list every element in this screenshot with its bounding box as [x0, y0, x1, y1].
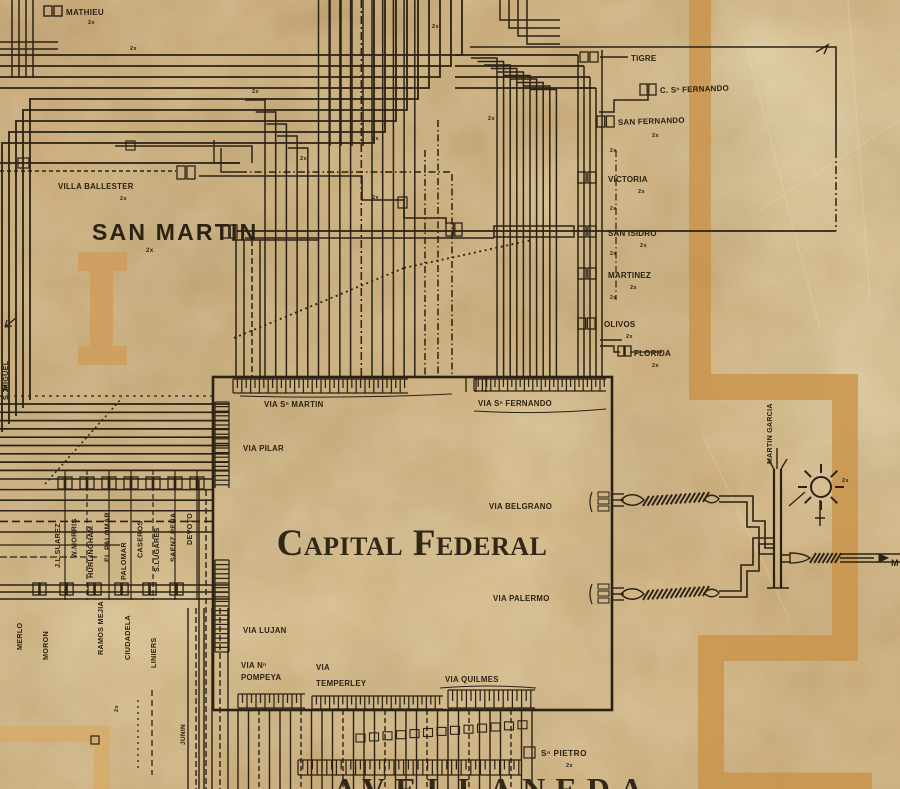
svg-text:TIGRE: TIGRE	[631, 54, 657, 63]
svg-text:2x: 2x	[146, 248, 154, 254]
svg-text:SAN MARTIN: SAN MARTIN	[92, 219, 258, 245]
svg-text:EL PALOMAR: EL PALOMAR	[103, 512, 112, 562]
svg-text:VIA PALERMO: VIA PALERMO	[493, 594, 550, 603]
svg-text:2x: 2x	[626, 334, 634, 340]
svg-text:2x: 2x	[252, 89, 260, 95]
svg-text:M: M	[891, 558, 899, 568]
svg-text:2x: 2x	[630, 285, 638, 291]
svg-text:SAN ISIDRO: SAN ISIDRO	[608, 229, 657, 238]
svg-text:PALOMAR: PALOMAR	[119, 542, 128, 580]
svg-text:MARTIN GARCIA: MARTIN GARCIA	[767, 403, 774, 464]
svg-text:VIA: VIA	[316, 663, 330, 672]
svg-text:OLIVOS: OLIVOS	[604, 320, 636, 329]
svg-text:Sⁿ PIETRO: Sⁿ PIETRO	[541, 749, 587, 758]
svg-text:VIA Nⁿ: VIA Nⁿ	[241, 661, 266, 670]
svg-text:FLORIDA: FLORIDA	[634, 349, 671, 358]
svg-text:POMPEYA: POMPEYA	[241, 673, 281, 682]
svg-text:2x: 2x	[842, 478, 850, 484]
svg-text:CASEROS: CASEROS	[136, 520, 145, 558]
svg-text:2x: 2x	[372, 136, 380, 142]
svg-text:2x: 2x	[120, 196, 128, 202]
svg-text:VIA Sⁿ MARTIN: VIA Sⁿ MARTIN	[264, 400, 324, 409]
svg-text:VIA QUILMES: VIA QUILMES	[445, 675, 499, 684]
svg-text:Capital Federal: Capital Federal	[277, 523, 548, 564]
svg-text:2x: 2x	[432, 24, 440, 30]
svg-text:S. MIGUEL: S. MIGUEL	[1, 360, 10, 400]
svg-text:TEMPERLEY: TEMPERLEY	[316, 679, 367, 688]
svg-text:2x: 2x	[610, 251, 617, 257]
svg-text:CIUDADELA: CIUDADELA	[123, 615, 132, 660]
svg-text:VIA LUJAN: VIA LUJAN	[243, 626, 287, 635]
svg-text:2x: 2x	[88, 20, 96, 26]
svg-text:2x: 2x	[488, 116, 496, 122]
svg-text:2x: 2x	[610, 148, 617, 154]
svg-text:SAENZ PEÑA: SAENZ PEÑA	[169, 513, 178, 562]
svg-text:MORON: MORON	[41, 631, 50, 660]
svg-text:VICTORIA: VICTORIA	[608, 175, 648, 184]
svg-text:2x: 2x	[638, 189, 646, 195]
svg-text:MARTINEZ: MARTINEZ	[608, 271, 651, 280]
svg-text:2x: 2x	[652, 363, 660, 369]
svg-text:W.MORRIS: W.MORRIS	[70, 518, 79, 558]
svg-text:RAMOS MEJIA: RAMOS MEJIA	[96, 601, 105, 655]
svg-text:2x: 2x	[610, 295, 617, 301]
svg-text:2x: 2x	[130, 46, 138, 52]
svg-text:2x: 2x	[610, 206, 617, 212]
svg-text:2x: 2x	[566, 763, 574, 769]
svg-text:2x: 2x	[640, 243, 648, 249]
svg-text:2x: 2x	[114, 704, 120, 712]
svg-text:AVELLANEDA: AVELLANEDA	[333, 771, 653, 789]
svg-text:MATHIEU: MATHIEU	[66, 8, 104, 17]
svg-text:VIA Sⁿ FERNANDO: VIA Sⁿ FERNANDO	[478, 399, 552, 408]
svg-text:MERLO: MERLO	[15, 622, 24, 650]
svg-text:VIA BELGRANO: VIA BELGRANO	[489, 502, 552, 511]
svg-text:VIA PILAR: VIA PILAR	[243, 444, 284, 453]
svg-text:VILLA BALLESTER: VILLA BALLESTER	[58, 182, 134, 191]
svg-text:2x: 2x	[372, 195, 380, 201]
svg-text:2x: 2x	[652, 133, 660, 139]
svg-text:JUNIN: JUNIN	[180, 724, 187, 745]
svg-text:2x: 2x	[300, 156, 308, 162]
svg-text:LINIERS: LINIERS	[149, 638, 158, 668]
svg-text:DEVOTO: DEVOTO	[185, 513, 194, 545]
